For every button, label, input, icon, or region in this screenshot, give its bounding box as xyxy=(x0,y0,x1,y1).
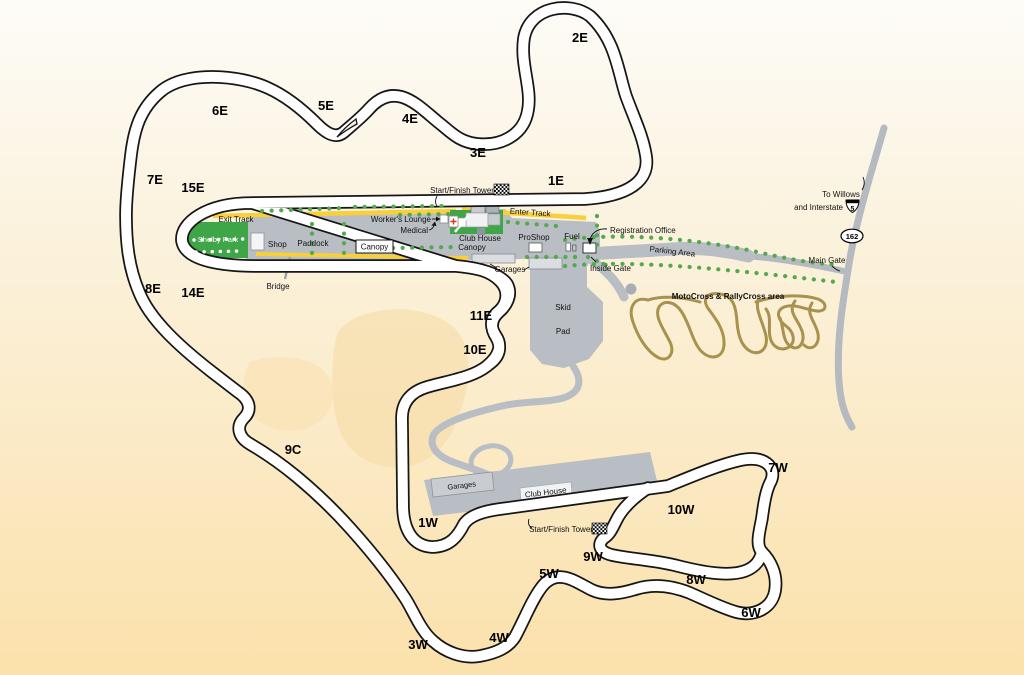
start-finish-tower-west-label: Start/Finish Tower xyxy=(529,525,593,534)
fuel-label: Fuel xyxy=(564,232,580,241)
medical-building xyxy=(449,216,458,227)
skid-pad-label-line2: Pad xyxy=(556,327,570,336)
turn-label-8w: 8W xyxy=(686,572,706,587)
club-house-canopy-label-line2: Canopy xyxy=(458,243,486,252)
inside-gate-label: Inside Gate xyxy=(590,264,631,273)
garage-building-1 xyxy=(472,254,515,263)
turn-label-9c: 9C xyxy=(285,442,302,457)
bridge-label: Bridge xyxy=(266,282,290,291)
track-map: 1E 2E 3E 4E 5E 6E 7E 8E 10E 11E 14E 15E … xyxy=(0,0,1024,675)
main-gate-label: Main Gate xyxy=(809,256,846,265)
proshop-label: ProShop xyxy=(518,233,550,242)
turn-label-7w: 7W xyxy=(768,460,788,475)
garage-building-2 xyxy=(529,258,562,269)
turn-label-3w: 3W xyxy=(408,637,428,652)
turn-label-8e: 8E xyxy=(145,281,161,296)
turn-label-5w: 5W xyxy=(539,566,559,581)
canopy-boxed-label: Canopy xyxy=(356,240,393,253)
checkered-flag-east xyxy=(494,184,509,195)
turn-label-10e: 10E xyxy=(463,342,486,357)
registration-office-label: Registration Office xyxy=(610,226,676,235)
canopy-label: Canopy xyxy=(361,243,389,252)
turn-label-6e: 6E xyxy=(212,103,228,118)
turn-label-5e: 5E xyxy=(318,98,334,113)
motocross-area-label: MotoCross & RallyCross area xyxy=(672,292,785,301)
exit-track-label: Exit Track xyxy=(218,215,254,224)
start-finish-tower-east-label: Start/Finish Tower xyxy=(430,186,494,195)
medical-label: Medical xyxy=(400,226,428,235)
turn-label-10w: 10W xyxy=(668,502,695,517)
to-willows-label-line2: and Interstate xyxy=(794,203,843,212)
turn-label-1e: 1E xyxy=(548,173,564,188)
proshop-building xyxy=(529,243,542,252)
turn-label-15e: 15E xyxy=(181,180,204,195)
turn-label-6w: 6W xyxy=(741,605,761,620)
paddock-label: Paddock xyxy=(297,239,329,248)
shop-building xyxy=(251,233,264,250)
pond-marker xyxy=(626,284,637,295)
garages-east-label: Garages xyxy=(495,265,526,274)
shelby-park-label: Shelby Park xyxy=(198,235,239,244)
turn-label-14e: 14E xyxy=(181,285,204,300)
club-house-canopy-label-line1: Club House xyxy=(459,234,501,243)
turn-label-4e: 4E xyxy=(402,111,418,126)
turn-label-2e: 2E xyxy=(572,30,588,45)
skid-pad-label-line1: Skid xyxy=(555,303,571,312)
workers-lounge-building xyxy=(440,215,448,223)
turn-label-4w: 4W xyxy=(489,630,509,645)
turn-label-9w: 9W xyxy=(583,549,603,564)
turn-label-11e: 11E xyxy=(470,308,493,323)
workers-lounge-label: Worker's Lounge xyxy=(371,215,432,224)
highway-162-number: 162 xyxy=(846,232,859,241)
highway-162-shield: 162 xyxy=(841,229,863,243)
registration-office-building xyxy=(583,243,596,253)
turn-label-1w: 1W xyxy=(418,515,438,530)
interstate-5-number: 5 xyxy=(851,206,855,213)
to-willows-label-line1: To Willows xyxy=(822,190,860,199)
checkered-flag-west xyxy=(592,523,607,534)
shop-label: Shop xyxy=(268,240,287,249)
turn-label-3e: 3E xyxy=(470,145,486,160)
turn-label-7e: 7E xyxy=(147,172,163,187)
